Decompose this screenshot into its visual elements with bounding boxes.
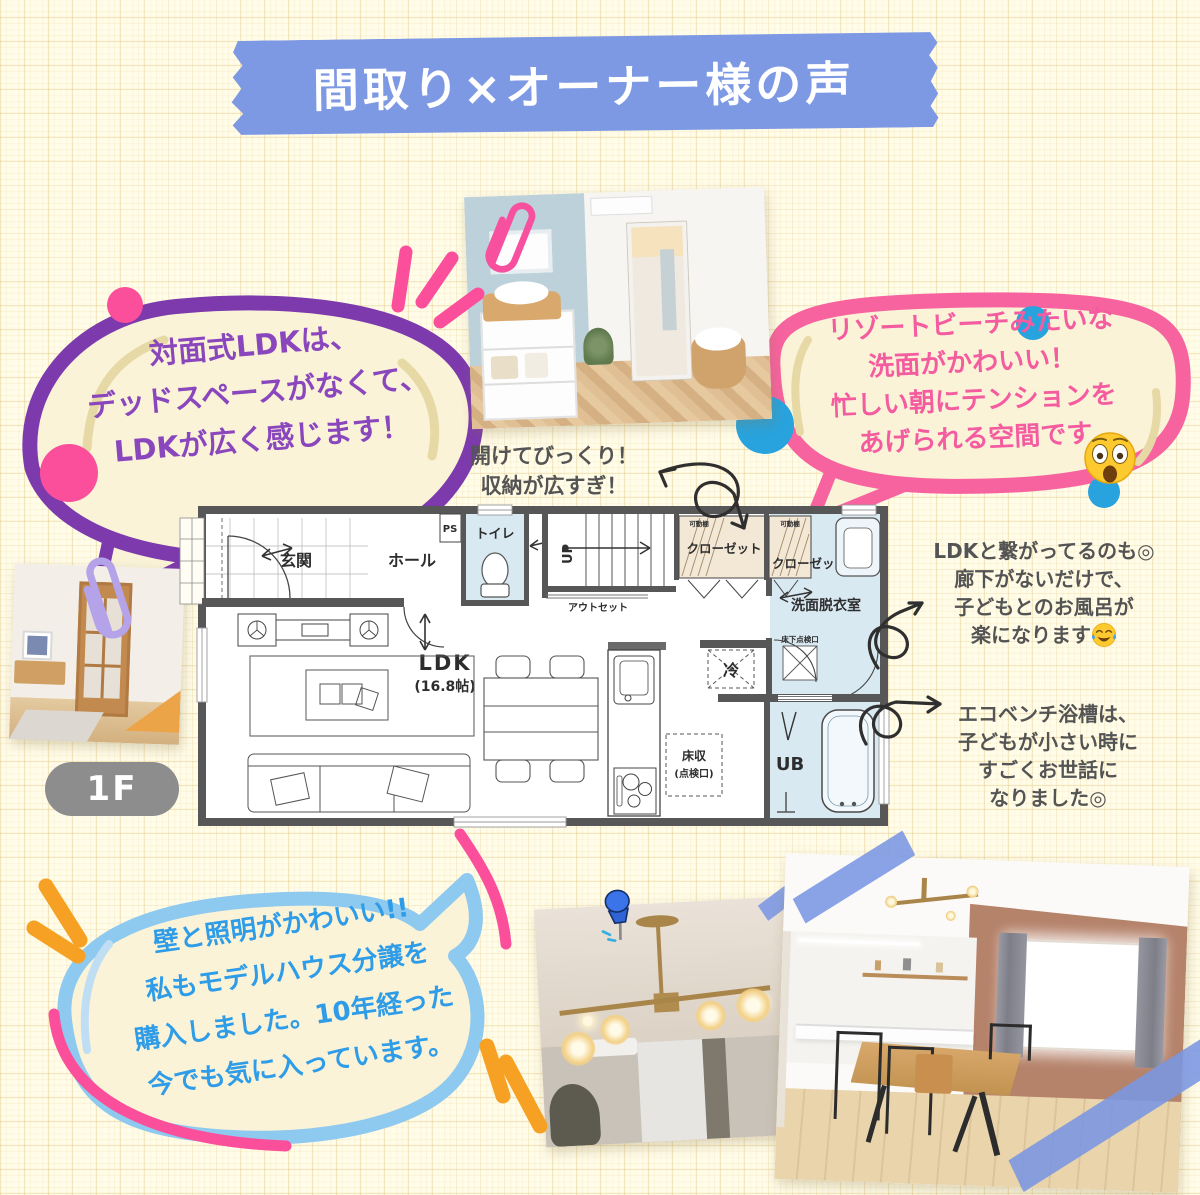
swirl-arrow-washroom (869, 603, 922, 668)
swirl-arrow-bath (860, 697, 940, 744)
pink-emphasis-marks (398, 252, 478, 322)
orange-emphasis-marks (34, 886, 540, 1126)
pink-arc-accents (54, 834, 506, 1146)
decor-overlay (0, 0, 1200, 1194)
swirl-arrow-storage (660, 464, 747, 528)
poster-canvas: { "title_banner": { "text": "間取り×オーナー様の声… (0, 0, 1200, 1194)
